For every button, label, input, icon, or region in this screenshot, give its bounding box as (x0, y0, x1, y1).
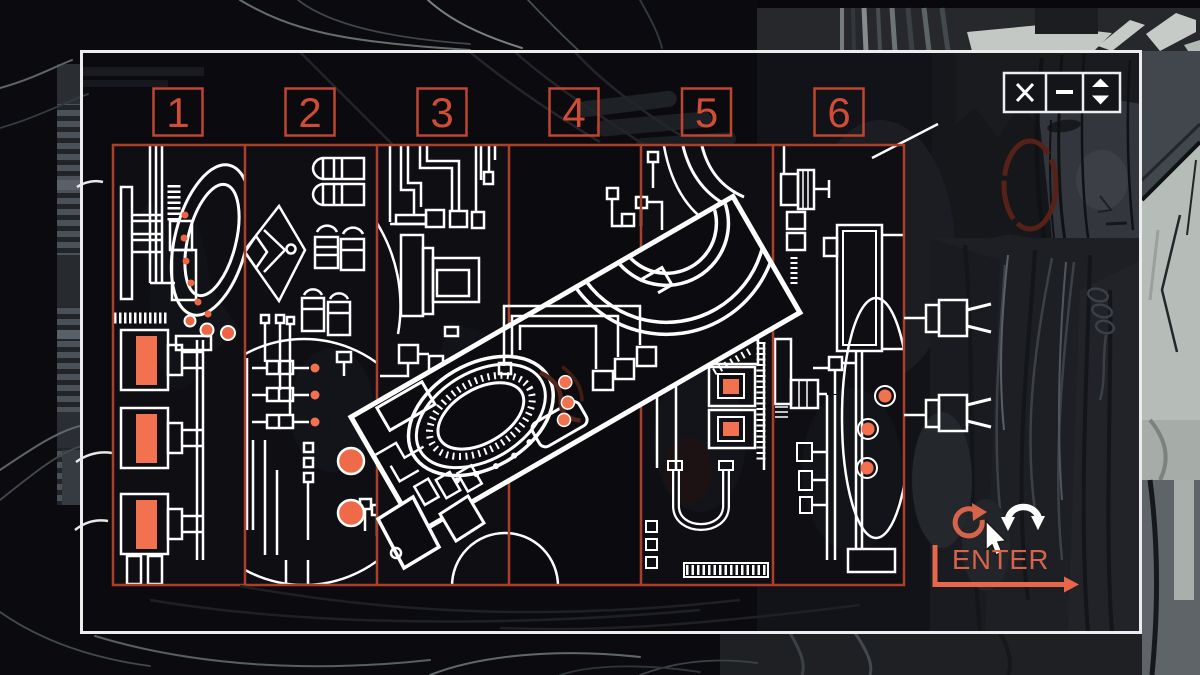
svg-text:1: 1 (166, 89, 189, 136)
svg-text:2: 2 (298, 89, 321, 136)
svg-text:ENTER: ENTER (952, 544, 1049, 575)
svg-text:4: 4 (562, 89, 585, 136)
svg-text:5: 5 (695, 89, 718, 136)
svg-text:3: 3 (430, 89, 453, 136)
svg-text:6: 6 (827, 89, 850, 136)
